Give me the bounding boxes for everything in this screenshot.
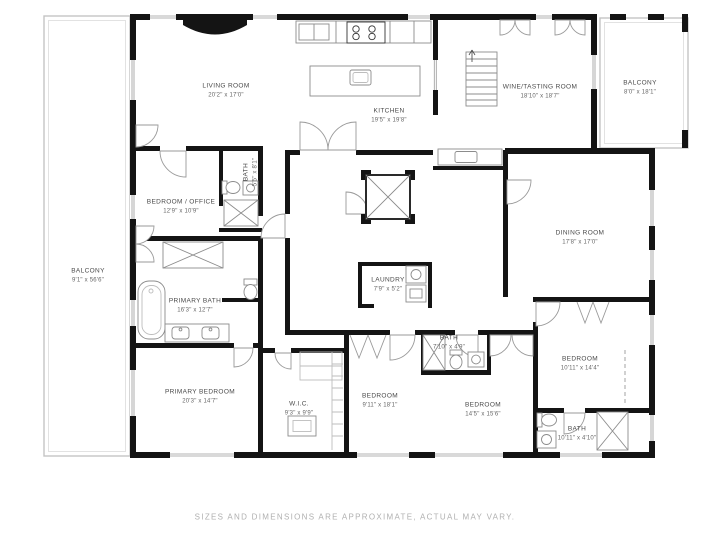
elevator: [361, 170, 415, 224]
room-name: LIVING ROOM: [202, 81, 249, 91]
room-name: DINING ROOM: [556, 228, 605, 238]
room-name: BEDROOM / OFFICE: [147, 197, 215, 207]
room-name: BATH: [558, 424, 597, 434]
room-dims: 18'10" x 18'7": [503, 92, 577, 101]
room-dims: 19'5" x 19'8": [371, 116, 407, 125]
room-name: BATH: [433, 333, 465, 343]
double-vanity: [165, 324, 229, 342]
room-dims: 10'11" x 14'4": [561, 364, 600, 373]
staircase: [466, 50, 497, 106]
room-label-balcony-left: BALCONY9'1" x 56'6": [71, 266, 105, 285]
room-label-kitchen: KITCHEN19'5" x 19'8": [371, 106, 407, 125]
room-dims: 10'11" x 4'10": [558, 434, 597, 443]
living-room-builtin: [183, 20, 247, 35]
room-label-wic: W.I.C.9'3" x 9'9": [285, 399, 313, 418]
room-label-bath-small: BATH5'5" x 8'1": [241, 158, 260, 186]
floor-plan-drawing: [0, 0, 711, 533]
room-label-bedroom-office: BEDROOM / OFFICE12'9" x 10'9": [147, 197, 215, 216]
room-dims: 17'8" x 17'0": [556, 238, 605, 247]
room-label-bedroom-3: BEDROOM10'11" x 14'4": [561, 354, 600, 373]
toilet: [244, 279, 257, 300]
room-dims: 9'3" x 9'9": [285, 409, 313, 418]
room-dims: 20'3" x 14'7": [165, 397, 235, 406]
room-label-bedroom-2: BEDROOM14'5" x 15'6": [465, 400, 501, 419]
shower: [224, 200, 258, 226]
room-name: LAUNDRY: [371, 275, 404, 285]
room-label-bath-ensuite: BATH10'11" x 4'10": [558, 424, 597, 443]
room-label-dining-room: DINING ROOM17'8" x 17'0": [556, 228, 605, 247]
room-dims: 12'9" x 10'9": [147, 207, 215, 216]
island-sink: [350, 70, 371, 85]
room-name: PRIMARY BEDROOM: [165, 387, 235, 397]
room-name: BALCONY: [71, 266, 105, 276]
sink: [468, 352, 484, 367]
room-name: BALCONY: [623, 78, 657, 88]
kitchen-island: [310, 66, 420, 96]
toilet: [450, 350, 462, 369]
room-label-balcony-right: BALCONY8'0" x 18'1": [623, 78, 657, 97]
room-name: W.I.C.: [285, 399, 313, 409]
balcony-left-railing: [44, 16, 130, 456]
small-bath-fixtures: [222, 181, 258, 226]
room-dims: 7'9" x 5'2": [371, 285, 404, 294]
bathtub: [138, 281, 165, 339]
disclaimer-text: SIZES AND DIMENSIONS ARE APPROXIMATE, AC…: [195, 513, 516, 522]
sink: [537, 431, 556, 448]
room-label-living-room: LIVING ROOM20'2" x 17'0": [202, 81, 249, 100]
room-name: BEDROOM: [561, 354, 600, 364]
wic-island: [288, 416, 316, 436]
stove: [347, 22, 385, 43]
room-label-primary-bedroom: PRIMARY BEDROOM20'3" x 14'7": [165, 387, 235, 406]
room-dims: 20'2" x 17'0": [202, 91, 249, 100]
room-name: BATH: [241, 158, 251, 186]
room-name: BEDROOM: [465, 400, 501, 410]
shower: [597, 412, 628, 450]
toilet: [222, 181, 240, 194]
room-name: PRIMARY BATH: [169, 296, 221, 306]
floor-plan: LIVING ROOM20'2" x 17'0" KITCHEN19'5" x …: [0, 0, 711, 533]
refrigerator: [299, 24, 329, 40]
room-dims: 16'3" x 12'7": [169, 306, 221, 315]
room-dims: 14'5" x 15'6": [465, 410, 501, 419]
room-dims: 9'1" x 56'6": [71, 276, 105, 285]
room-label-bedroom-1: BEDROOM9'11" x 18'1": [362, 391, 398, 410]
room-label-wine-tasting: WINE/TASTING ROOM18'10" x 18'7": [503, 82, 577, 101]
room-name: KITCHEN: [371, 106, 407, 116]
washer-dryer: [406, 266, 426, 302]
closet-crossbox: [163, 242, 223, 268]
room-label-bath-hall: BATH7'10" x 4'9": [433, 333, 465, 352]
toilet: [537, 413, 557, 427]
room-name: WINE/TASTING ROOM: [503, 82, 577, 92]
room-dims: 9'11" x 18'1": [362, 401, 398, 410]
room-dims: 8'0" x 18'1": [623, 88, 657, 97]
room-dims: 7'10" x 4'9": [433, 343, 465, 352]
room-label-primary-bath: PRIMARY BATH16'3" x 12'7": [169, 296, 221, 315]
room-name: BEDROOM: [362, 391, 398, 401]
room-label-laundry: LAUNDRY7'9" x 5'2": [371, 275, 404, 294]
wine-room-counter: [438, 149, 502, 165]
room-dims: 5'5" x 8'1": [251, 158, 260, 186]
